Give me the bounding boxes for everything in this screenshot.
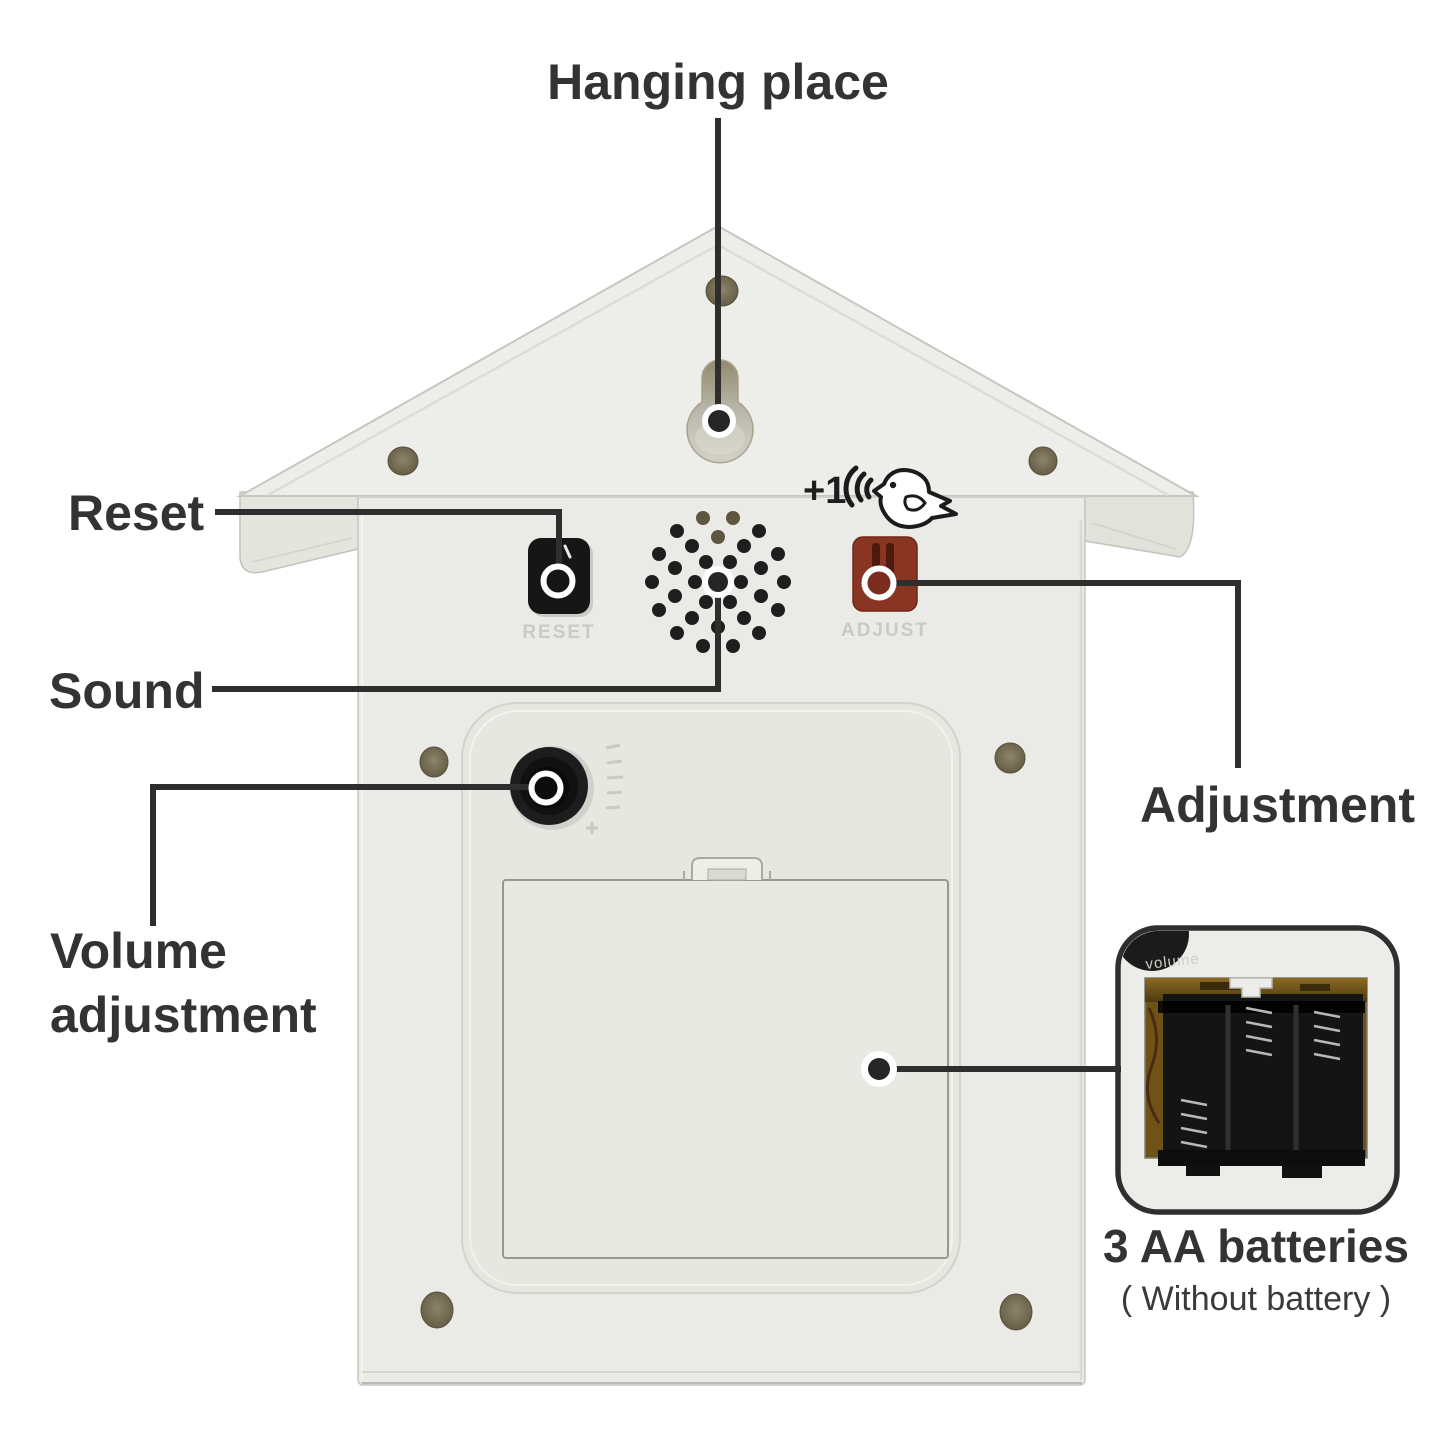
screw-hole-mid-right <box>995 743 1025 773</box>
reset-label: Reset <box>68 485 205 541</box>
batteries-title-label: 3 AA batteries <box>1103 1220 1409 1272</box>
reset-target-ring <box>544 567 573 596</box>
sound-target-dot <box>708 572 728 592</box>
product-diagram: +1 RESET ADJUST Volume <box>0 0 1445 1445</box>
screw-hole-bottom-right <box>1000 1294 1032 1330</box>
volume-adjustment-label-line2: adjustment <box>50 987 317 1043</box>
screw-hole-roof-left <box>388 447 418 475</box>
right-eave <box>1085 492 1194 557</box>
adjustment-label: Adjustment <box>1140 777 1415 833</box>
screw-hole-peak <box>706 276 738 306</box>
screw-hole-bottom-left <box>421 1292 453 1328</box>
hanging-place-label: Hanging place <box>547 54 889 110</box>
battery-target-dot <box>868 1058 890 1080</box>
screw-hole-roof-right <box>1029 447 1057 475</box>
battery-inset: volume <box>1115 897 1397 1212</box>
inset-holder-foot-1 <box>1282 1164 1322 1178</box>
inset-holder-foot-2 <box>1186 1164 1220 1176</box>
diagram-canvas: +1 RESET ADJUST Volume <box>0 0 1445 1445</box>
bird-eye <box>890 482 896 488</box>
battery-inset-content: volume <box>1115 897 1397 1212</box>
inset-battery-holder <box>1163 994 1363 1157</box>
adjust-embossed-label: ADJUST <box>841 620 929 641</box>
reset-embossed-label: RESET <box>522 622 595 643</box>
screw-hole-mid-left <box>420 747 448 777</box>
battery-door-latch-notch <box>708 869 746 880</box>
plus-one-text: +1 <box>803 470 846 512</box>
hanging-target-dot <box>708 410 730 432</box>
inset-pcb-chip2 <box>1300 984 1330 991</box>
volume-adjustment-label-line1: Volume <box>50 923 227 979</box>
volume-target-ring <box>532 774 561 803</box>
batteries-subtitle-label: ( Without battery ) <box>1121 1280 1391 1318</box>
inset-holder-bottom-rail <box>1158 1150 1365 1166</box>
sound-label: Sound <box>49 663 205 719</box>
adjust-target-ring <box>865 569 894 598</box>
